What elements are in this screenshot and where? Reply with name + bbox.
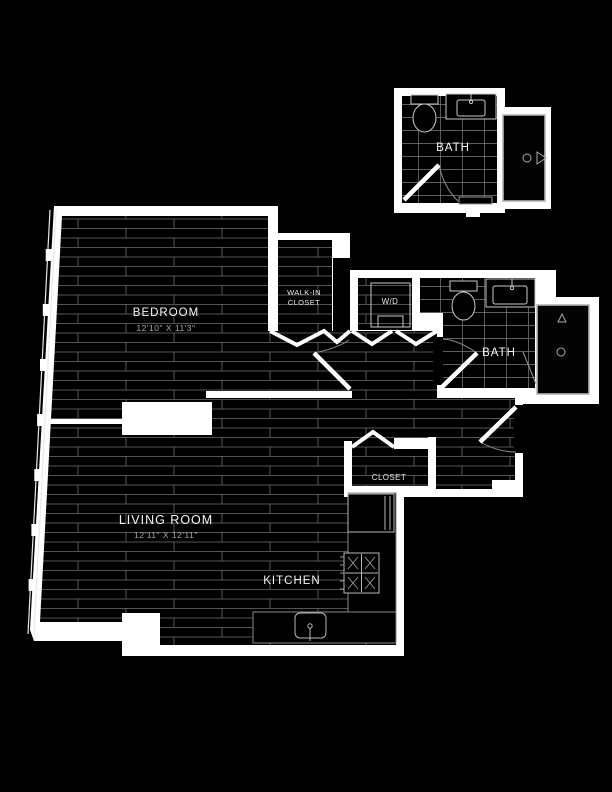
upper-bath-label: BATH: [436, 142, 470, 154]
door-opening: [433, 337, 443, 385]
wall: [394, 438, 432, 449]
bath-label: BATH: [482, 347, 516, 359]
closet-label: CLOSET: [372, 473, 406, 482]
bedroom-dimensions: 12'10" X 11'3": [136, 323, 195, 333]
stove-icon: [340, 553, 379, 593]
floor-plan-page: BATH CLOSET: [0, 0, 612, 792]
door-opening: [514, 405, 523, 453]
wall: [466, 203, 480, 217]
living-room-dimensions: 12'11" X 12'11": [134, 530, 198, 540]
wall: [122, 402, 212, 435]
wall: [206, 391, 352, 398]
refrigerator-icon: [348, 494, 394, 532]
walk-in-closet-label-line1: WALK-IN: [287, 288, 321, 297]
bedroom-label: BEDROOM: [133, 307, 199, 319]
sink-icon: [486, 279, 535, 307]
toilet-icon: [411, 95, 438, 132]
kitchen-sink-icon: [295, 613, 326, 641]
kitchen-label: KITCHEN: [263, 575, 320, 587]
wall: [492, 480, 523, 497]
toilet-icon: [450, 281, 477, 320]
sink-icon: [446, 94, 496, 119]
upper-bath: BATH: [394, 88, 551, 217]
threshold: [459, 197, 492, 204]
living-room-label: LIVING ROOM: [119, 513, 213, 527]
shower-icon: [503, 115, 546, 201]
wall-cavity: [333, 258, 350, 332]
window-sill: [45, 419, 122, 424]
walk-in-closet-label-line2: CLOSET: [288, 298, 320, 307]
walk-in-closet-floor: [278, 240, 332, 332]
washer-dryer-label: W/D: [382, 297, 399, 306]
wall: [344, 441, 352, 492]
floor-plan-drawing: BATH CLOSET: [0, 0, 612, 792]
